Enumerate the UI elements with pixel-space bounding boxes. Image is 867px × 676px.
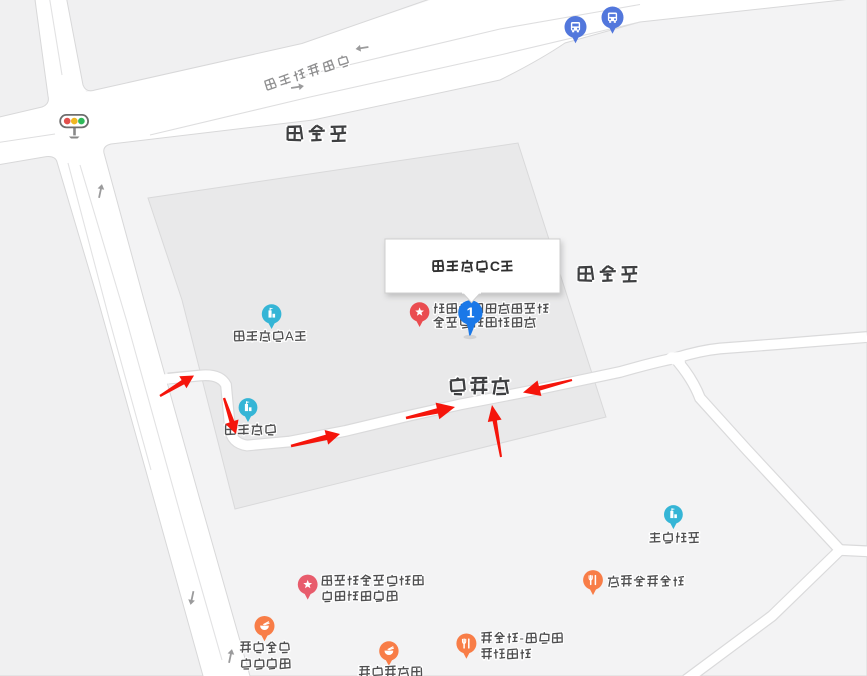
svg-text:1: 1 xyxy=(467,306,475,322)
svg-text:A: A xyxy=(285,329,294,344)
svg-text:C: C xyxy=(490,258,500,274)
svg-text:-: - xyxy=(520,631,524,646)
